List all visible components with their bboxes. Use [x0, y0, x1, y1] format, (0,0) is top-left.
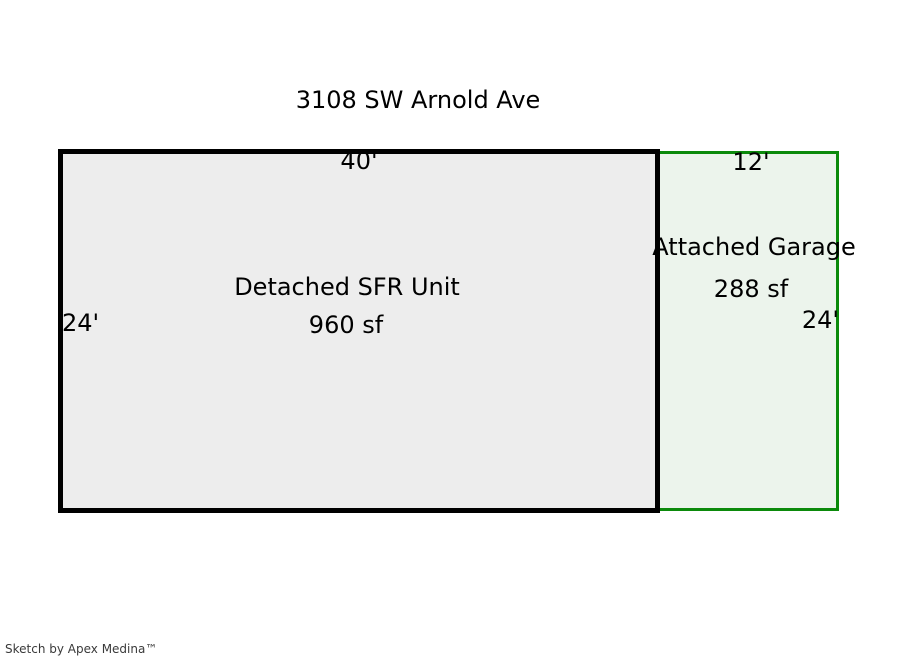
sketch-credit: Sketch by Apex Medina™	[5, 642, 157, 656]
garage-side-dimension: 24'	[802, 307, 839, 333]
garage-area: 288 sf	[714, 276, 788, 302]
property-address-title: 3108 SW Arnold Ave	[296, 86, 541, 114]
main-unit-side-dimension: 24'	[62, 310, 99, 336]
garage-top-dimension: 12'	[732, 149, 769, 175]
garage-label: Attached Garage	[652, 234, 855, 260]
sketch-canvas: 3108 SW Arnold Ave 40' 24' Detached SFR …	[0, 0, 900, 660]
main-unit-top-dimension: 40'	[340, 148, 377, 174]
main-unit-label: Detached SFR Unit	[234, 274, 460, 300]
main-unit-area: 960 sf	[309, 312, 383, 338]
